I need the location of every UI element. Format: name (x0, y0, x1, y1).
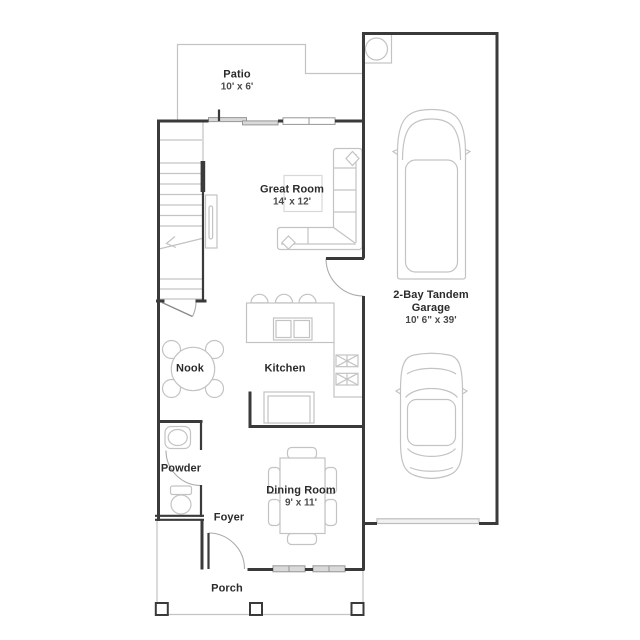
garage-door (377, 519, 479, 524)
floor-plan-drawing (0, 0, 640, 640)
kitchen-sink (274, 318, 313, 340)
room-label-foyer: Foyer (214, 512, 244, 525)
understair-closet-door (162, 303, 196, 317)
staircase (157, 123, 203, 300)
front-door-arc (209, 533, 245, 569)
floor-plan: Patio 10' x 6' Great Room 14' x 12' 2-Ba… (0, 0, 640, 640)
bar-stool (251, 294, 268, 303)
dining-chair (288, 534, 317, 545)
bar-stool (299, 294, 316, 303)
powder-wall-bottom (155, 516, 204, 520)
powder-sink (165, 427, 191, 449)
sliding-door-panel (243, 121, 279, 125)
room-label-nook: Nook (176, 363, 204, 376)
room-label-kitchen: Kitchen (264, 363, 305, 376)
room-label-porch: Porch (211, 583, 243, 596)
dining-chair (288, 448, 317, 459)
patio-outline (178, 45, 363, 122)
stair-railing-wall (201, 161, 206, 192)
sliding-door-panel (209, 118, 247, 122)
room-label-dining-room: Dining Room 9' x 11' (266, 485, 336, 510)
tv-console (206, 195, 218, 248)
stair-direction-arrow (157, 237, 202, 250)
water-heater (363, 34, 392, 64)
car-front-bay (393, 110, 470, 280)
room-label-powder: Powder (161, 463, 201, 476)
kitchen-fixtures (247, 294, 365, 423)
bar-stool (276, 294, 293, 303)
car-rear-bay (396, 353, 467, 478)
toilet (171, 486, 192, 514)
garage-entry-door-arc (326, 259, 364, 297)
room-label-great-room: Great Room 14' x 12' (260, 184, 324, 209)
counter (334, 343, 364, 398)
room-label-garage: 2-Bay Tandem Garage 10' 6" x 39' (393, 289, 469, 327)
cooktop (336, 355, 358, 385)
refrigerator (264, 392, 314, 423)
room-label-patio: Patio 10' x 6' (221, 69, 254, 94)
